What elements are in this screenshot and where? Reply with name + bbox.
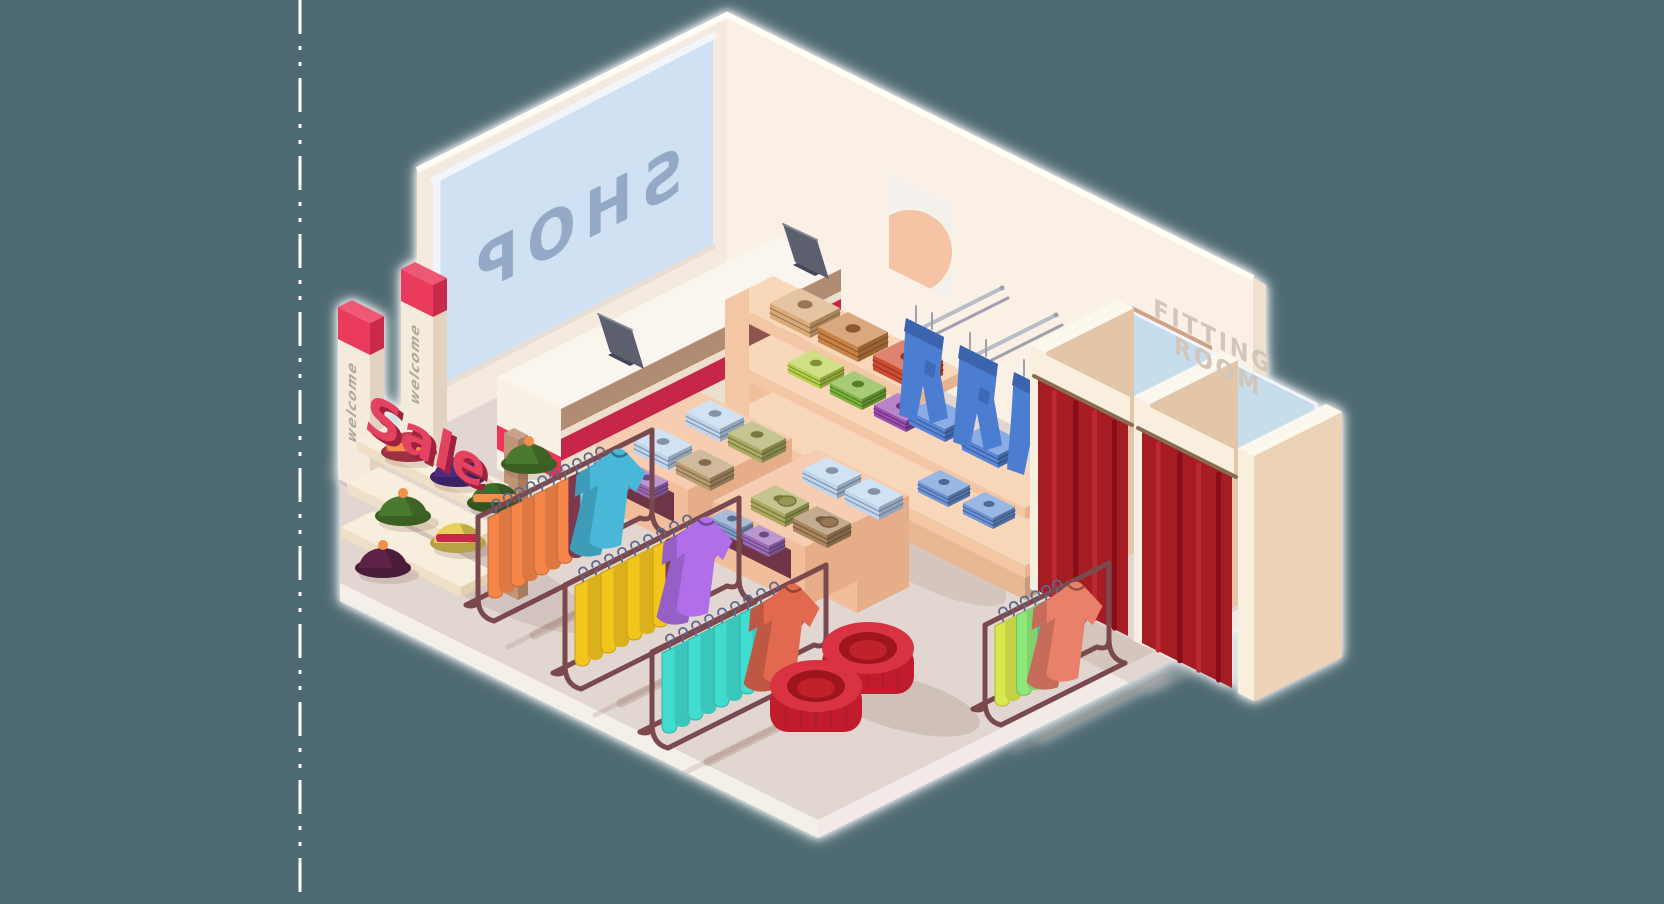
welcome-banner-text-2: welcome — [408, 321, 422, 408]
shop-illustration-canvas: SHOP Sale Sale FITTING ROOM welcome welc… — [0, 0, 1664, 904]
canvas: SHOP Sale Sale FITTING ROOM welcome welc… — [0, 0, 1664, 904]
welcome-banner-text-1: welcome — [345, 359, 359, 446]
pouf-seat — [770, 660, 862, 732]
